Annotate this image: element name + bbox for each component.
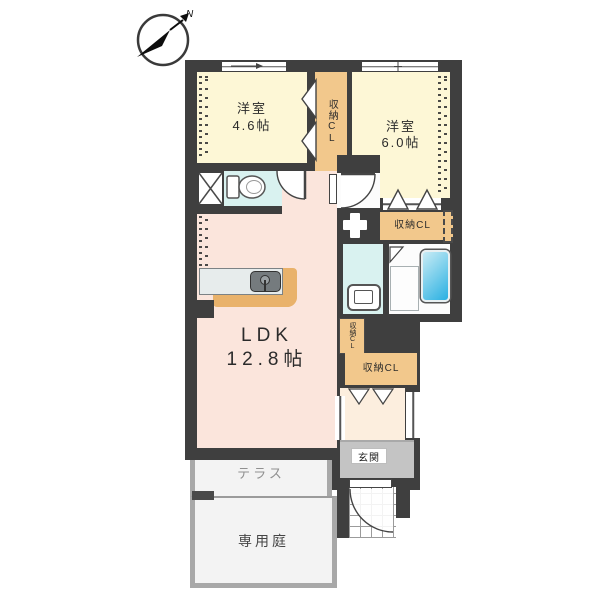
closet-hall-label: 収納CL xyxy=(363,363,400,376)
bathroom-floor xyxy=(390,266,419,311)
garden-wall-tick xyxy=(192,491,214,500)
kitchen-wall-stub xyxy=(197,300,214,318)
closet-door-gap xyxy=(383,198,441,210)
bedroom-large-window xyxy=(362,62,438,71)
hall-window xyxy=(406,392,420,438)
closet-bedroom-small-label: 収納CL xyxy=(325,99,338,145)
bedroom-small-size: 4.6帖 xyxy=(232,118,271,134)
compass-north-label: N xyxy=(186,9,194,20)
hallway xyxy=(340,388,405,440)
compass-icon: N xyxy=(137,9,194,65)
private-garden-label: 専用庭 xyxy=(238,531,289,551)
closet-ldk: 収納CL xyxy=(339,318,365,354)
porch-wall-left xyxy=(337,488,349,538)
floor-plan: 洋室 4.6帖 収納CL 洋室 6.0帖 LDK 12.8帖 収納CL xyxy=(0,0,600,600)
toilet-door-leaf xyxy=(329,174,337,204)
bedroom-large-name: 洋室 xyxy=(386,119,416,135)
bedroom-small-wall-hatch xyxy=(198,76,209,160)
washbasin-bowl xyxy=(354,290,373,304)
ldk-hall-door-gap xyxy=(335,396,345,440)
bedroom-large-size: 6.0帖 xyxy=(381,135,420,151)
kitchen-sink xyxy=(250,271,281,292)
closet-bedroom-large-label: 収納CL xyxy=(394,220,431,233)
room-bedroom-small: 洋室 4.6帖 xyxy=(197,72,307,163)
kitchen-counter-wrap-right xyxy=(283,268,297,307)
closet-hall: 収納CL xyxy=(345,353,417,385)
ldk-wall-hatch xyxy=(198,216,209,266)
room-ldk: LDK 12.8帖 xyxy=(197,214,337,448)
room-toilet xyxy=(224,171,282,206)
private-garden: 専用庭 xyxy=(190,496,337,588)
porch-tiles xyxy=(349,487,396,538)
bedroom-large-wall-hatch xyxy=(437,76,449,196)
closet-ldk-label: 収納CL xyxy=(347,322,357,350)
wall-bedroom-large-sw xyxy=(337,155,380,173)
ldk-name: LDK xyxy=(241,324,293,348)
hall-pocket xyxy=(337,173,380,208)
bedroom-small-window xyxy=(222,62,286,71)
ldk-size: 12.8帖 xyxy=(227,348,308,372)
entrance-label-box: 玄関 xyxy=(351,448,387,464)
terrace-label: テラス xyxy=(237,463,285,482)
closet-hatch-strip xyxy=(443,210,453,243)
shaft-box xyxy=(197,171,224,206)
entrance-label: 玄関 xyxy=(358,449,380,464)
bedroom-small-name: 洋室 xyxy=(237,101,267,117)
bathtub xyxy=(421,250,450,302)
closet-bedroom-large: 収納CL xyxy=(380,212,445,240)
entrance-door-leaf xyxy=(349,479,392,488)
pipe-space-plus-v xyxy=(350,213,360,238)
